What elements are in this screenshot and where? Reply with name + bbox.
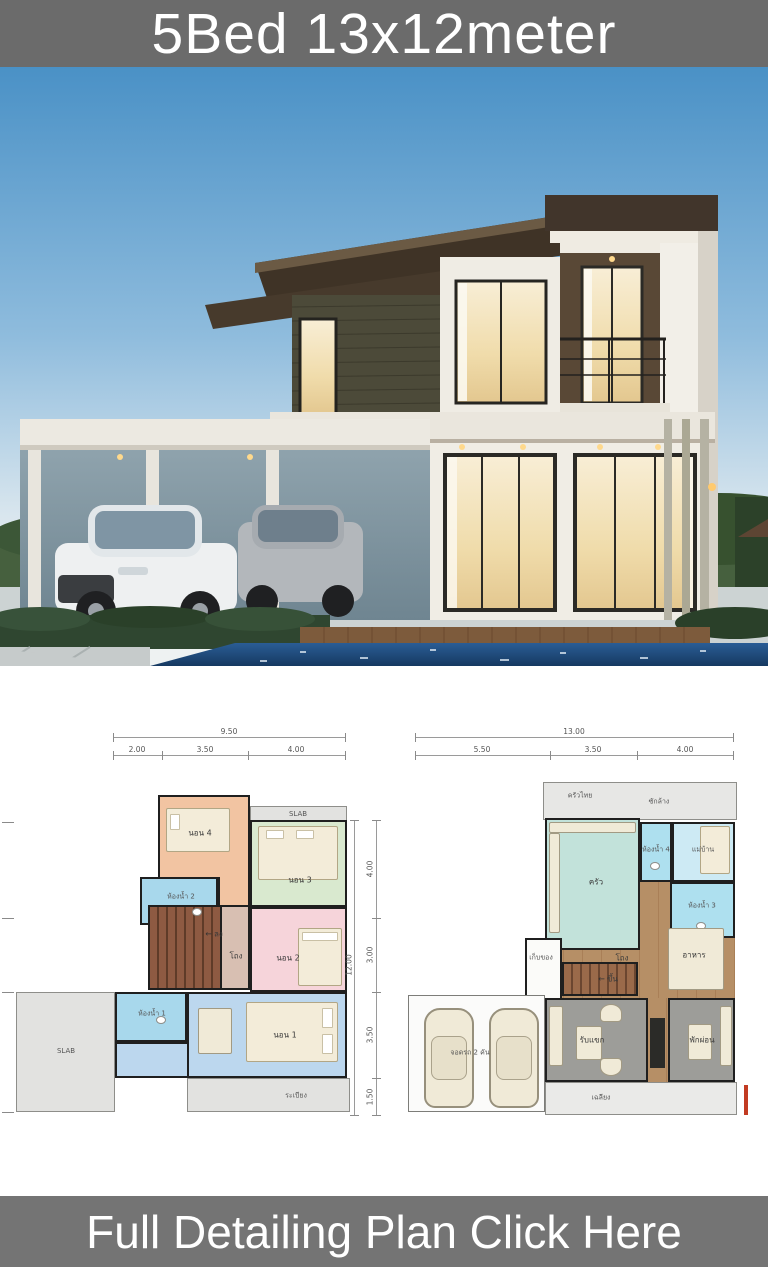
page: 5Bed 13x12meter	[0, 0, 768, 1267]
room-hall-2f	[222, 905, 250, 990]
tv-cabinet	[650, 1018, 665, 1068]
cta-label: Full Detailing Plan Click Here	[86, 1205, 682, 1259]
room-bedroom1-ext	[115, 1042, 187, 1078]
dim-seg: 4.00	[288, 745, 305, 754]
room-label-living: รับแขก	[580, 1034, 605, 1047]
dim-seg: 4.00	[677, 745, 694, 754]
room-bedroom4-closet	[218, 877, 250, 907]
dim-seg: 3.00	[366, 947, 375, 964]
room-label-maid: แม่บ้าน	[692, 845, 714, 856]
dim-seg: 5.50	[474, 745, 491, 754]
sofa	[720, 1006, 732, 1066]
room-label-bath3: ห้องน้ำ 3	[688, 901, 716, 912]
room-label-laundry: ซักล้าง	[649, 797, 670, 808]
kitchen-counter	[549, 822, 636, 833]
dim-line	[113, 755, 345, 756]
stairs-second-floor	[148, 905, 222, 990]
room-label-balcony: ระเบียง	[285, 1091, 307, 1102]
room-label-hall-1f: โถง	[615, 952, 628, 965]
pillow	[322, 1008, 333, 1028]
dim-seg: 1.50	[366, 1089, 375, 1106]
plan-car	[489, 1008, 539, 1108]
room-label-porch: เฉลียง	[592, 1093, 611, 1104]
dim-seg: 2.00	[129, 745, 146, 754]
room-label-bedroom4: นอน 4	[188, 827, 211, 840]
room-label-relax: พักผ่อน	[689, 1034, 714, 1047]
room-label-dining: อาหาร	[682, 949, 705, 962]
room-label-carport: จอดรถ 2 คัน	[450, 1048, 489, 1059]
room-label-bath4: ห้องน้ำ 4	[642, 845, 670, 856]
dim-seg: 3.50	[585, 745, 602, 754]
room-label-slab-left: SLAB	[57, 1047, 75, 1055]
stairs-up-label: ← ขึ้น	[598, 973, 618, 986]
dim-line	[354, 820, 355, 1115]
dim-total: 13.00	[563, 727, 584, 736]
pillow	[302, 932, 338, 941]
room-label-bath1: ห้องน้ำ 1	[138, 1009, 166, 1020]
room-label-kitchen: ครัว	[589, 876, 603, 889]
pillow	[266, 830, 284, 839]
room-label-bedroom1: นอน 1	[273, 1029, 296, 1042]
room-label-hall-2f: โถง	[229, 950, 242, 963]
room-label-storage: เก็บของ	[529, 953, 552, 964]
armchair	[600, 1004, 622, 1022]
floor-plans: 9.50 2.00 3.50 4.00 12.00 4.00 3.00 3.50…	[0, 0, 768, 1267]
room-balcony	[187, 1078, 350, 1112]
dim-seg: 3.50	[197, 745, 214, 754]
pillow	[322, 1034, 333, 1054]
room-storage	[525, 938, 562, 1000]
armchair	[600, 1058, 622, 1076]
red-scale-mark	[744, 1085, 748, 1115]
stairs-down-label: ← ลง	[205, 928, 223, 941]
sofa	[198, 1008, 232, 1054]
dim-seg: 3.50	[366, 1027, 375, 1044]
pillow	[170, 814, 180, 830]
dim-seg: 4.00	[366, 861, 375, 878]
room-porch	[545, 1082, 737, 1115]
dim-line	[113, 737, 345, 738]
room-label-bath2: ห้องน้ำ 2	[167, 892, 195, 903]
dim-line	[415, 755, 733, 756]
kitchen-counter	[549, 833, 560, 933]
room-label-bedroom2: นอน 2	[276, 952, 299, 965]
toilet-icon	[192, 908, 202, 916]
corridor-wood	[640, 882, 670, 938]
dim-line	[415, 737, 733, 738]
room-label-slab-top: SLAB	[289, 810, 307, 818]
sink-icon	[650, 862, 660, 870]
pillow	[296, 830, 314, 839]
room-label-bedroom3: นอน 3	[288, 874, 311, 887]
dim-line	[376, 820, 377, 1115]
dim-total: 12.00	[345, 954, 354, 975]
room-label-thai-kitchen: ครัวไทย	[568, 791, 593, 802]
arrow-left-icon: ←	[205, 930, 212, 939]
dim-total: 9.50	[221, 727, 238, 736]
cta-banner[interactable]: Full Detailing Plan Click Here	[0, 1196, 768, 1267]
arrow-left-icon: ←	[598, 975, 605, 984]
sofa	[549, 1006, 563, 1066]
